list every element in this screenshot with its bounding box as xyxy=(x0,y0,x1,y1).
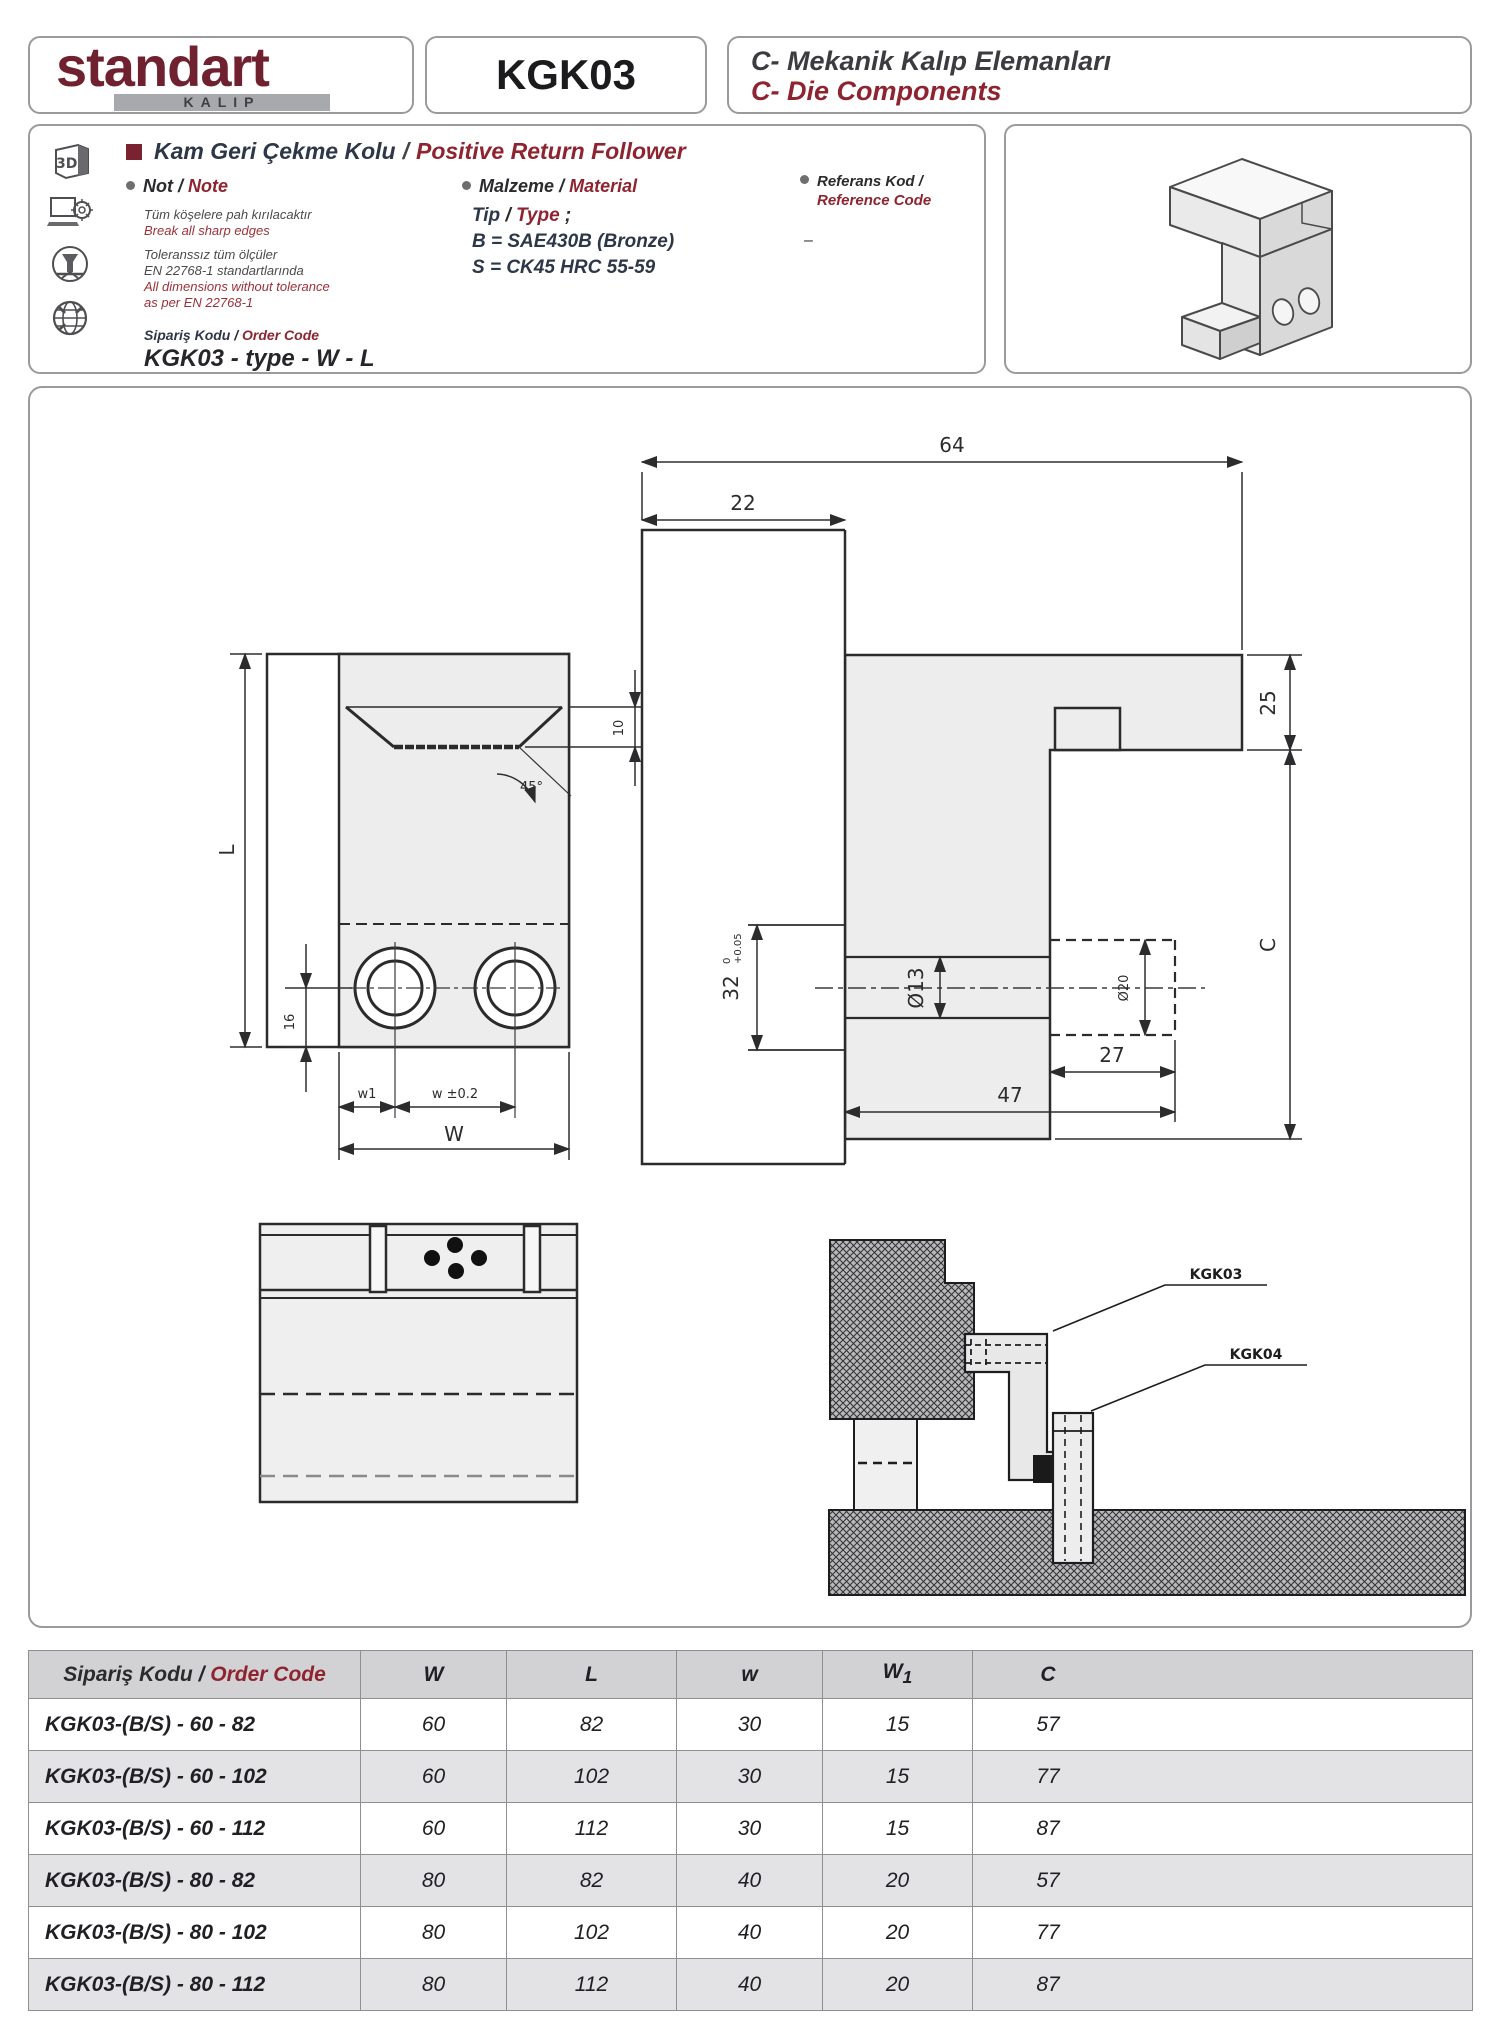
machining-icon xyxy=(50,244,90,284)
table-row: KGK03-(B/S) - 60 - 102 60 102 30 15 77 xyxy=(29,1751,1473,1803)
dim-label-32-tol-bot: +0.05 xyxy=(733,933,744,964)
cell-w: 30 xyxy=(677,1803,823,1855)
reference-value: – xyxy=(804,232,931,250)
cell-L: 102 xyxy=(507,1907,677,1959)
note-line-tr: Toleranssız tüm ölçüler xyxy=(144,247,375,263)
logo-subtitle-band: KALIP xyxy=(114,94,330,111)
cell-order-code: KGK03-(B/S) - 60 - 82 xyxy=(29,1699,361,1751)
globe-icon xyxy=(50,298,90,338)
isometric-view-box xyxy=(1004,124,1472,374)
cell-W1: 15 xyxy=(823,1699,973,1751)
title-square-icon xyxy=(126,144,142,160)
cell-W: 60 xyxy=(361,1803,507,1855)
material-section: Malzeme / Material Tip / Type ; B = SAE4… xyxy=(462,176,674,281)
cell-C: 57 xyxy=(973,1699,1473,1751)
cell-C: 77 xyxy=(973,1751,1473,1803)
part-title-en: Positive Return Follower xyxy=(416,138,686,165)
category-box: C- Mekanik Kalıp Elemanları C- Die Compo… xyxy=(727,36,1472,114)
cell-C: 87 xyxy=(973,1959,1473,2011)
material-type-b: B = SAE430B (Bronze) xyxy=(472,229,674,255)
note-heading: Not / Note xyxy=(126,176,375,197)
product-info-box: 3D Kam Geri Çekme Kolu / Positive Return… xyxy=(28,124,986,374)
dim-label-32: 32 xyxy=(719,975,743,1000)
cell-order-code: KGK03-(B/S) - 60 - 102 xyxy=(29,1751,361,1803)
assembly-label-kgk03: KGK03 xyxy=(1190,1267,1243,1283)
cell-W1: 20 xyxy=(823,1959,973,2011)
table-header-row: Sipariş Kodu / Order Code W L w W1 C xyxy=(29,1651,1473,1699)
dim-label-27: 27 xyxy=(1099,1043,1124,1067)
dim-label-L: L xyxy=(215,844,239,856)
material-type-heading: Tip / Type ; xyxy=(472,203,674,229)
side-view-drawing: 64 22 25 C 32 0 +0.05 Ø13 Ø20 27 47 xyxy=(630,420,1350,1210)
note-line-tr: EN 22768-1 standartlarında xyxy=(144,263,375,279)
feature-icon-column: 3D xyxy=(42,140,98,338)
col-header-W: W xyxy=(361,1651,507,1699)
dim-label-16: 16 xyxy=(283,1014,298,1031)
reference-heading-en: Reference Code xyxy=(817,191,931,210)
note-section: Not / Note Tüm köşelere pah kırılacaktır… xyxy=(126,176,375,373)
dim-label-45: 45° xyxy=(520,780,543,795)
cell-C: 87 xyxy=(973,1803,1473,1855)
cell-w: 40 xyxy=(677,1855,823,1907)
cell-W: 80 xyxy=(361,1959,507,2011)
cell-W1: 20 xyxy=(823,1907,973,1959)
cell-C: 77 xyxy=(973,1907,1473,1959)
bottom-view-part xyxy=(260,1224,577,1502)
cell-W: 80 xyxy=(361,1907,507,1959)
material-heading: Malzeme / Material xyxy=(462,176,674,197)
side-view-part xyxy=(642,530,1242,1164)
cell-L: 102 xyxy=(507,1751,677,1803)
category-title-tr: C- Mekanik Kalıp Elemanları xyxy=(751,46,1470,76)
dim-label-25: 25 xyxy=(1256,690,1280,715)
note-line-en: Break all sharp edges xyxy=(144,223,375,239)
cell-w: 30 xyxy=(677,1751,823,1803)
note-line-tr: Tüm köşelere pah kırılacaktır xyxy=(144,207,375,223)
cell-order-code: KGK03-(B/S) - 80 - 102 xyxy=(29,1907,361,1959)
cell-w: 30 xyxy=(677,1699,823,1751)
order-code-heading: Sipariş Kodu / Order Code xyxy=(144,327,375,343)
product-code: KGK03 xyxy=(496,51,636,99)
cell-order-code: KGK03-(B/S) - 80 - 112 xyxy=(29,1959,361,2011)
assembly-label-kgk04: KGK04 xyxy=(1230,1347,1283,1363)
cell-C: 57 xyxy=(973,1855,1473,1907)
technical-drawing-panel: L 10 45° 16 w1 w ±0.2 W xyxy=(28,386,1472,1628)
table-row: KGK03-(B/S) - 80 - 102 80 102 40 20 77 xyxy=(29,1907,1473,1959)
dim-label-20: Ø20 xyxy=(1117,975,1132,1002)
dim-label-22: 22 xyxy=(730,491,755,515)
material-type-s: S = CK45 HRC 55-59 xyxy=(472,255,674,281)
front-view-part xyxy=(267,654,569,1118)
dim-label-64: 64 xyxy=(939,433,964,457)
col-header-order-code: Sipariş Kodu / Order Code xyxy=(29,1651,361,1699)
brand-logo: standart KALIP xyxy=(30,38,412,112)
cell-W: 60 xyxy=(361,1699,507,1751)
dim-label-W: W xyxy=(444,1122,464,1146)
dim-label-10: 10 xyxy=(612,720,627,737)
bullet-icon xyxy=(462,181,471,190)
dim-label-13: Ø13 xyxy=(904,967,928,1008)
cell-W: 60 xyxy=(361,1751,507,1803)
dim-label-w1: w1 xyxy=(358,1087,377,1102)
bullet-icon xyxy=(126,181,135,190)
col-header-C: C xyxy=(973,1651,1473,1699)
reference-section: Referans Kod / Reference Code – xyxy=(800,172,931,250)
col-header-L: L xyxy=(507,1651,677,1699)
isometric-part-drawing xyxy=(1073,129,1403,369)
dim-label-w-tol: w ±0.2 xyxy=(432,1087,478,1102)
assembly-drawing: KGK03 KGK04 xyxy=(605,1123,1485,1603)
dim-label-32-tol-top: 0 xyxy=(722,958,733,964)
cell-L: 82 xyxy=(507,1855,677,1907)
cell-W1: 15 xyxy=(823,1751,973,1803)
3d-model-icon: 3D xyxy=(48,140,92,180)
note-line-en: All dimensions without tolerance xyxy=(144,279,375,295)
dimension-table: Sipariş Kodu / Order Code W L w W1 C KGK… xyxy=(28,1650,1473,2011)
svg-text:3D: 3D xyxy=(56,156,77,172)
logo-subtitle: KALIP xyxy=(184,94,261,110)
bottom-view-drawing xyxy=(252,1218,602,1508)
dim-label-C: C xyxy=(1256,938,1280,952)
dim-label-47: 47 xyxy=(997,1083,1022,1107)
title-separator: / xyxy=(403,138,409,165)
cell-L: 112 xyxy=(507,1803,677,1855)
table-row: KGK03-(B/S) - 80 - 112 80 112 40 20 87 xyxy=(29,1959,1473,2011)
cell-w: 40 xyxy=(677,1907,823,1959)
cad-laptop-icon xyxy=(47,194,93,230)
cell-W: 80 xyxy=(361,1855,507,1907)
logo-wordmark: standart xyxy=(56,34,269,99)
cell-order-code: KGK03-(B/S) - 80 - 82 xyxy=(29,1855,361,1907)
bullet-icon xyxy=(800,175,809,184)
cell-L: 82 xyxy=(507,1699,677,1751)
cell-w: 40 xyxy=(677,1959,823,2011)
note-line-en: as per EN 22768-1 xyxy=(144,295,375,311)
col-header-w: w xyxy=(677,1651,823,1699)
cell-order-code: KGK03-(B/S) - 60 - 112 xyxy=(29,1803,361,1855)
table-row: KGK03-(B/S) - 80 - 82 80 82 40 20 57 xyxy=(29,1855,1473,1907)
cell-L: 112 xyxy=(507,1959,677,2011)
reference-heading-tr: Referans Kod / xyxy=(800,172,931,191)
category-title-en: C- Die Components xyxy=(751,76,1470,106)
cell-W1: 20 xyxy=(823,1855,973,1907)
logo-box: standart KALIP xyxy=(28,36,414,114)
col-header-W1: W1 xyxy=(823,1651,973,1699)
part-title: Kam Geri Çekme Kolu / Positive Return Fo… xyxy=(126,138,686,165)
cell-W1: 15 xyxy=(823,1803,973,1855)
part-title-tr: Kam Geri Çekme Kolu xyxy=(154,138,396,165)
product-code-box: KGK03 xyxy=(425,36,707,114)
table-row: KGK03-(B/S) - 60 - 112 60 112 30 15 87 xyxy=(29,1803,1473,1855)
table-row: KGK03-(B/S) - 60 - 82 60 82 30 15 57 xyxy=(29,1699,1473,1751)
order-code-format: KGK03 - type - W - L xyxy=(144,345,375,373)
